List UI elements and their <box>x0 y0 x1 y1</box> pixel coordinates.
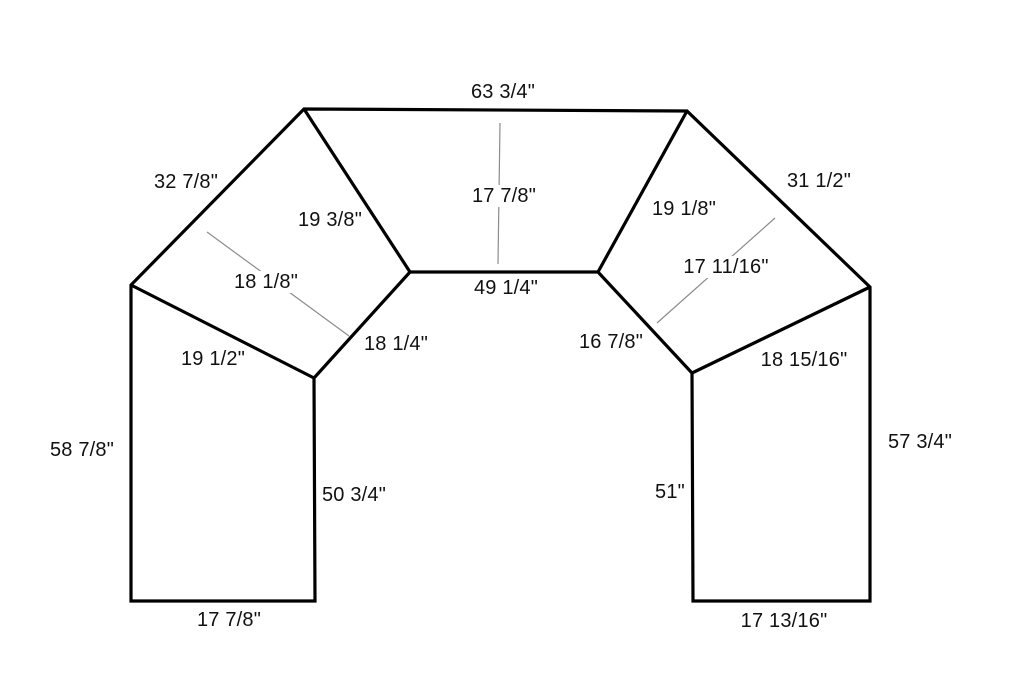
dimension-label: 18 15/16" <box>761 349 848 371</box>
dimension-label: 49 1/4" <box>474 277 538 299</box>
measurement-diagram: 63 3/4"32 7/8"31 1/2"19 3/8"17 7/8"19 1/… <box>0 0 1024 694</box>
dimension-labels-layer: 63 3/4"32 7/8"31 1/2"19 3/8"17 7/8"19 1/… <box>0 0 1024 694</box>
dimension-label: 51" <box>655 481 685 503</box>
dimension-label: 19 3/8" <box>298 209 362 231</box>
dimension-label: 31 1/2" <box>787 170 851 192</box>
dimension-label: 19 1/2" <box>181 348 245 370</box>
dimension-label: 17 11/16" <box>679 256 772 278</box>
dimension-label: 17 7/8" <box>197 609 261 631</box>
dimension-label: 63 3/4" <box>471 81 535 103</box>
dimension-label: 18 1/4" <box>364 333 428 355</box>
dimension-label: 17 7/8" <box>468 185 540 207</box>
dimension-label: 17 13/16" <box>741 610 828 632</box>
dimension-label: 18 1/8" <box>230 271 302 293</box>
dimension-label: 19 1/8" <box>652 198 716 220</box>
dimension-label: 58 7/8" <box>50 439 114 461</box>
dimension-label: 57 3/4" <box>888 431 952 453</box>
dimension-label: 32 7/8" <box>154 171 218 193</box>
dimension-label: 16 7/8" <box>579 331 643 353</box>
dimension-label: 50 3/4" <box>322 484 386 506</box>
